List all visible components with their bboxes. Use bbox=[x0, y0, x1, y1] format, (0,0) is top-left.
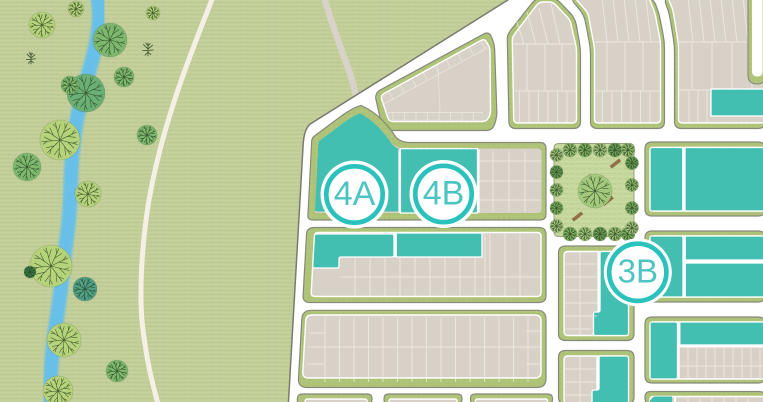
svg-text:3B: 3B bbox=[618, 252, 658, 289]
svg-text:4A: 4A bbox=[334, 175, 376, 213]
svg-text:4B: 4B bbox=[423, 174, 465, 212]
